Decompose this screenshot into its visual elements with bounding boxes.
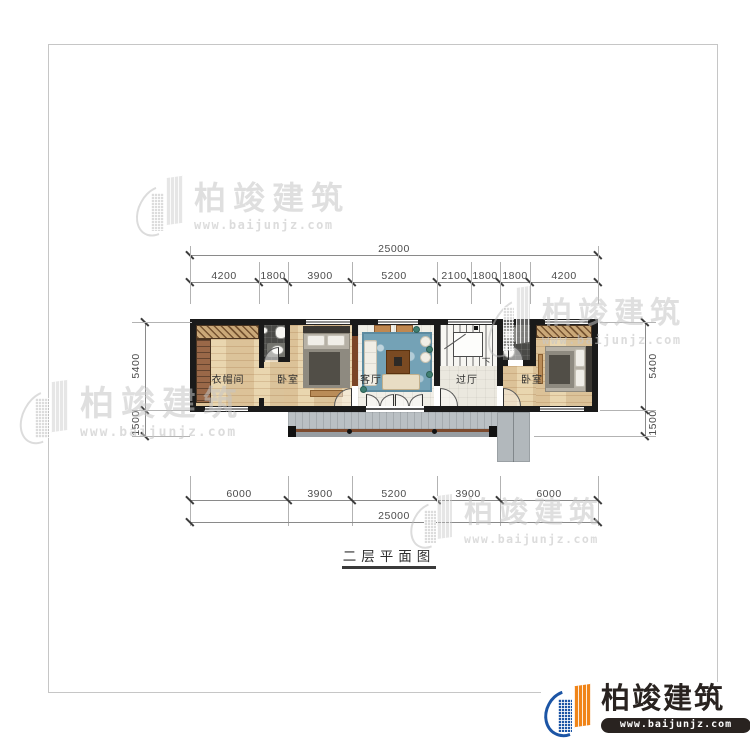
extension-line	[500, 262, 501, 304]
extension-line	[600, 322, 656, 323]
dim-line-right	[645, 322, 646, 436]
wall-exterior-right	[592, 319, 598, 412]
dim-bottom-seg: 3900	[455, 488, 480, 500]
dim-top-seg: 4200	[551, 270, 576, 282]
extension-line	[471, 262, 472, 304]
drawing-title: 二层平面图	[343, 545, 436, 565]
dim-right-seg: 1500	[647, 410, 659, 435]
wall-exterior-left	[190, 319, 196, 412]
dim-left-seg: 5400	[130, 353, 142, 378]
brand-url-bar: www.baijunjz.com	[601, 718, 750, 733]
brand-building-icon	[545, 684, 593, 738]
wall-bath-right-bottom	[497, 360, 508, 366]
stair-landing	[453, 332, 483, 357]
room-label-living: 客厅	[360, 371, 382, 386]
plant	[426, 346, 433, 353]
tv-wall-panel	[352, 336, 358, 386]
brand-logo-text: 柏竣建筑 www.baijunjz.com	[601, 684, 750, 733]
window	[306, 319, 350, 325]
dim-top-seg: 1800	[472, 270, 497, 282]
wall-hall-bedroom	[497, 325, 503, 386]
dim-bottom-seg: 6000	[536, 488, 561, 500]
dim-line-left	[145, 322, 146, 436]
bed-left-headboard	[303, 326, 350, 333]
dim-line-bottom-total	[190, 522, 598, 523]
dim-top-seg: 3900	[307, 270, 332, 282]
extension-line	[259, 262, 260, 304]
balcony-post	[489, 426, 497, 437]
rail-post-dot	[432, 429, 437, 434]
extension-line	[132, 436, 190, 437]
cloakroom-closet-top	[196, 325, 259, 339]
extension-line	[352, 262, 353, 304]
plant	[360, 386, 367, 393]
plant	[413, 326, 420, 333]
stairs-down-label: 下	[481, 355, 490, 368]
brand-name: 柏竣建筑	[601, 684, 750, 716]
dim-bottom-total: 25000	[378, 510, 410, 522]
extension-line	[598, 246, 599, 304]
extension-line	[132, 322, 192, 323]
dim-line-top-segments	[190, 282, 598, 283]
stair-rail-post	[474, 326, 478, 330]
brand-logo: 柏竣建筑 www.baijunjz.com	[541, 682, 750, 740]
window	[545, 319, 588, 325]
bed-left-duvet-dark	[309, 352, 340, 385]
window	[205, 406, 248, 412]
extension-line	[190, 246, 191, 304]
extension-line	[530, 262, 531, 304]
dim-top-total: 25000	[378, 243, 410, 255]
bed-left-pillow	[307, 335, 325, 346]
room-label-cloakroom: 衣帽间	[212, 371, 245, 386]
window	[540, 406, 584, 412]
walkway-divider-line	[513, 412, 514, 462]
cloakroom-closet-left	[196, 339, 211, 403]
bed-left-pillow	[327, 335, 345, 346]
dim-top-seg: 4200	[211, 270, 236, 282]
wall-bath-right-bottom	[523, 360, 536, 366]
wardrobe-right	[536, 325, 592, 338]
dim-bottom-seg: 3900	[307, 488, 332, 500]
wall-living-hall	[434, 325, 440, 386]
floorplan-page: 柏竣建筑 www.baijunjz.com 柏竣建筑 www.baijunjz.…	[0, 0, 750, 750]
wall-bath-left-bottom	[279, 357, 290, 362]
dim-top-seg: 1800	[502, 270, 527, 282]
dim-top-seg: 1800	[260, 270, 285, 282]
bed-right-pillow	[575, 369, 585, 387]
bed-right-duvet-dark	[549, 355, 570, 384]
dim-bottom-seg: 6000	[226, 488, 251, 500]
dim-top-seg: 2100	[441, 270, 466, 282]
balcony-rail	[288, 432, 497, 437]
extension-line	[534, 436, 656, 437]
dim-line-top-total	[190, 255, 598, 256]
room-label-hallway: 过厅	[456, 371, 478, 386]
window	[448, 319, 492, 325]
brand-url: www.baijunjz.com	[620, 720, 732, 730]
extension-line	[437, 262, 438, 304]
balcony-post	[288, 426, 296, 437]
dim-line-bottom-segments	[190, 500, 598, 501]
daybed-bench	[382, 374, 420, 390]
folding-door-sill	[366, 408, 424, 410]
title-underline	[342, 566, 436, 569]
dim-right-seg: 5400	[647, 353, 659, 378]
wall-cloakroom	[259, 398, 264, 406]
dim-left-seg: 1500	[130, 410, 142, 435]
plant	[426, 371, 433, 378]
stool	[420, 352, 431, 363]
rail-post-dot	[347, 429, 352, 434]
extension-line	[288, 262, 289, 304]
bed-right-pillow	[575, 349, 585, 367]
coffee-table-decor	[394, 357, 402, 366]
room-label-bedroom-right: 卧室	[521, 371, 543, 386]
window	[378, 319, 418, 325]
room-label-bedroom-left: 卧室	[277, 371, 299, 386]
dim-top-seg: 5200	[381, 270, 406, 282]
dim-bottom-seg: 5200	[381, 488, 406, 500]
bath-right-sink	[504, 330, 514, 339]
